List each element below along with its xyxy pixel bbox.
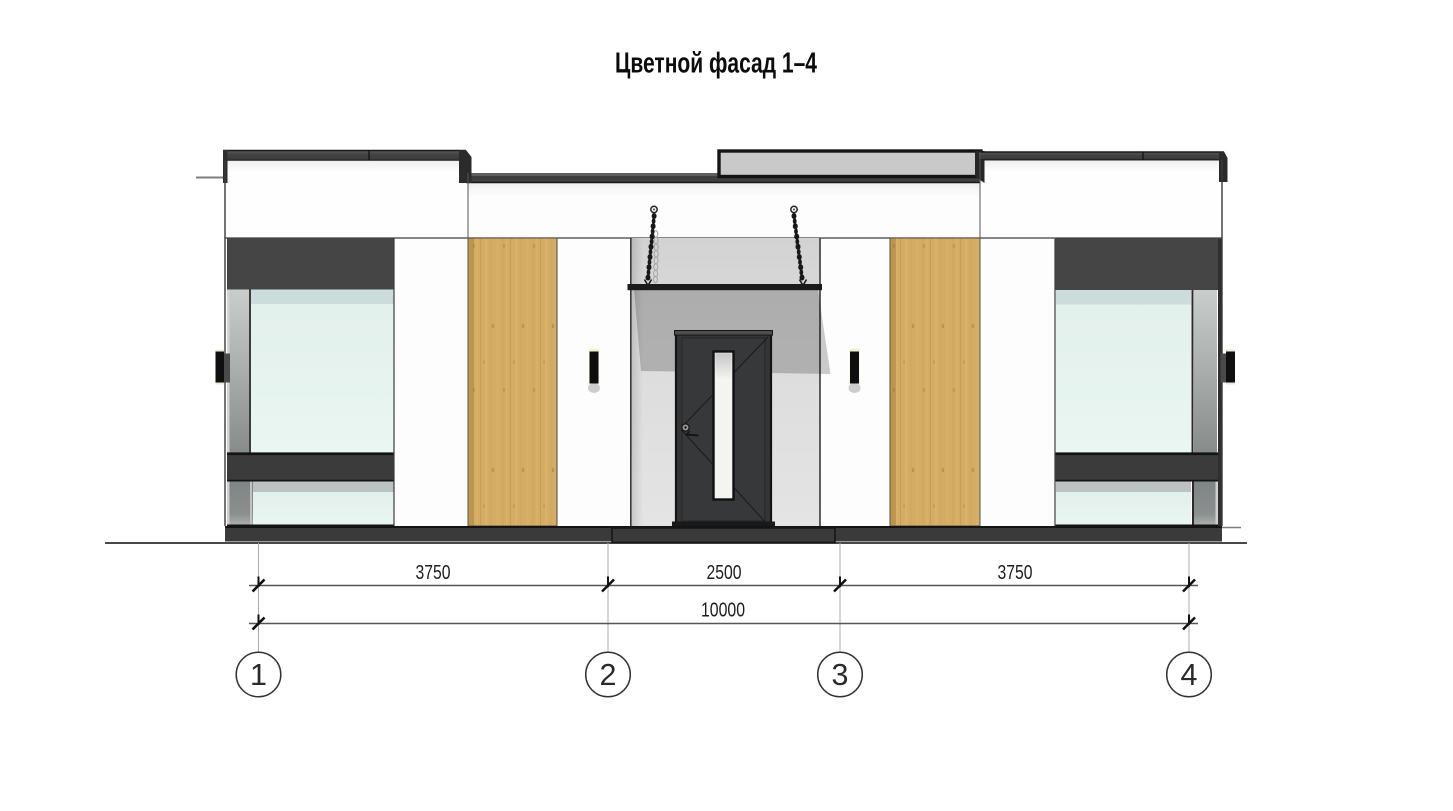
svg-text:4: 4 — [1181, 658, 1198, 692]
svg-text:10000: 10000 — [701, 600, 745, 622]
svg-text:2: 2 — [600, 658, 617, 692]
svg-text:3750: 3750 — [998, 562, 1033, 584]
svg-text:3: 3 — [832, 658, 849, 692]
svg-text:2500: 2500 — [707, 562, 742, 584]
svg-text:Цветной фасад 1–4: Цветной фасад 1–4 — [615, 48, 817, 80]
svg-text:1: 1 — [250, 658, 267, 692]
svg-text:3750: 3750 — [416, 562, 451, 584]
